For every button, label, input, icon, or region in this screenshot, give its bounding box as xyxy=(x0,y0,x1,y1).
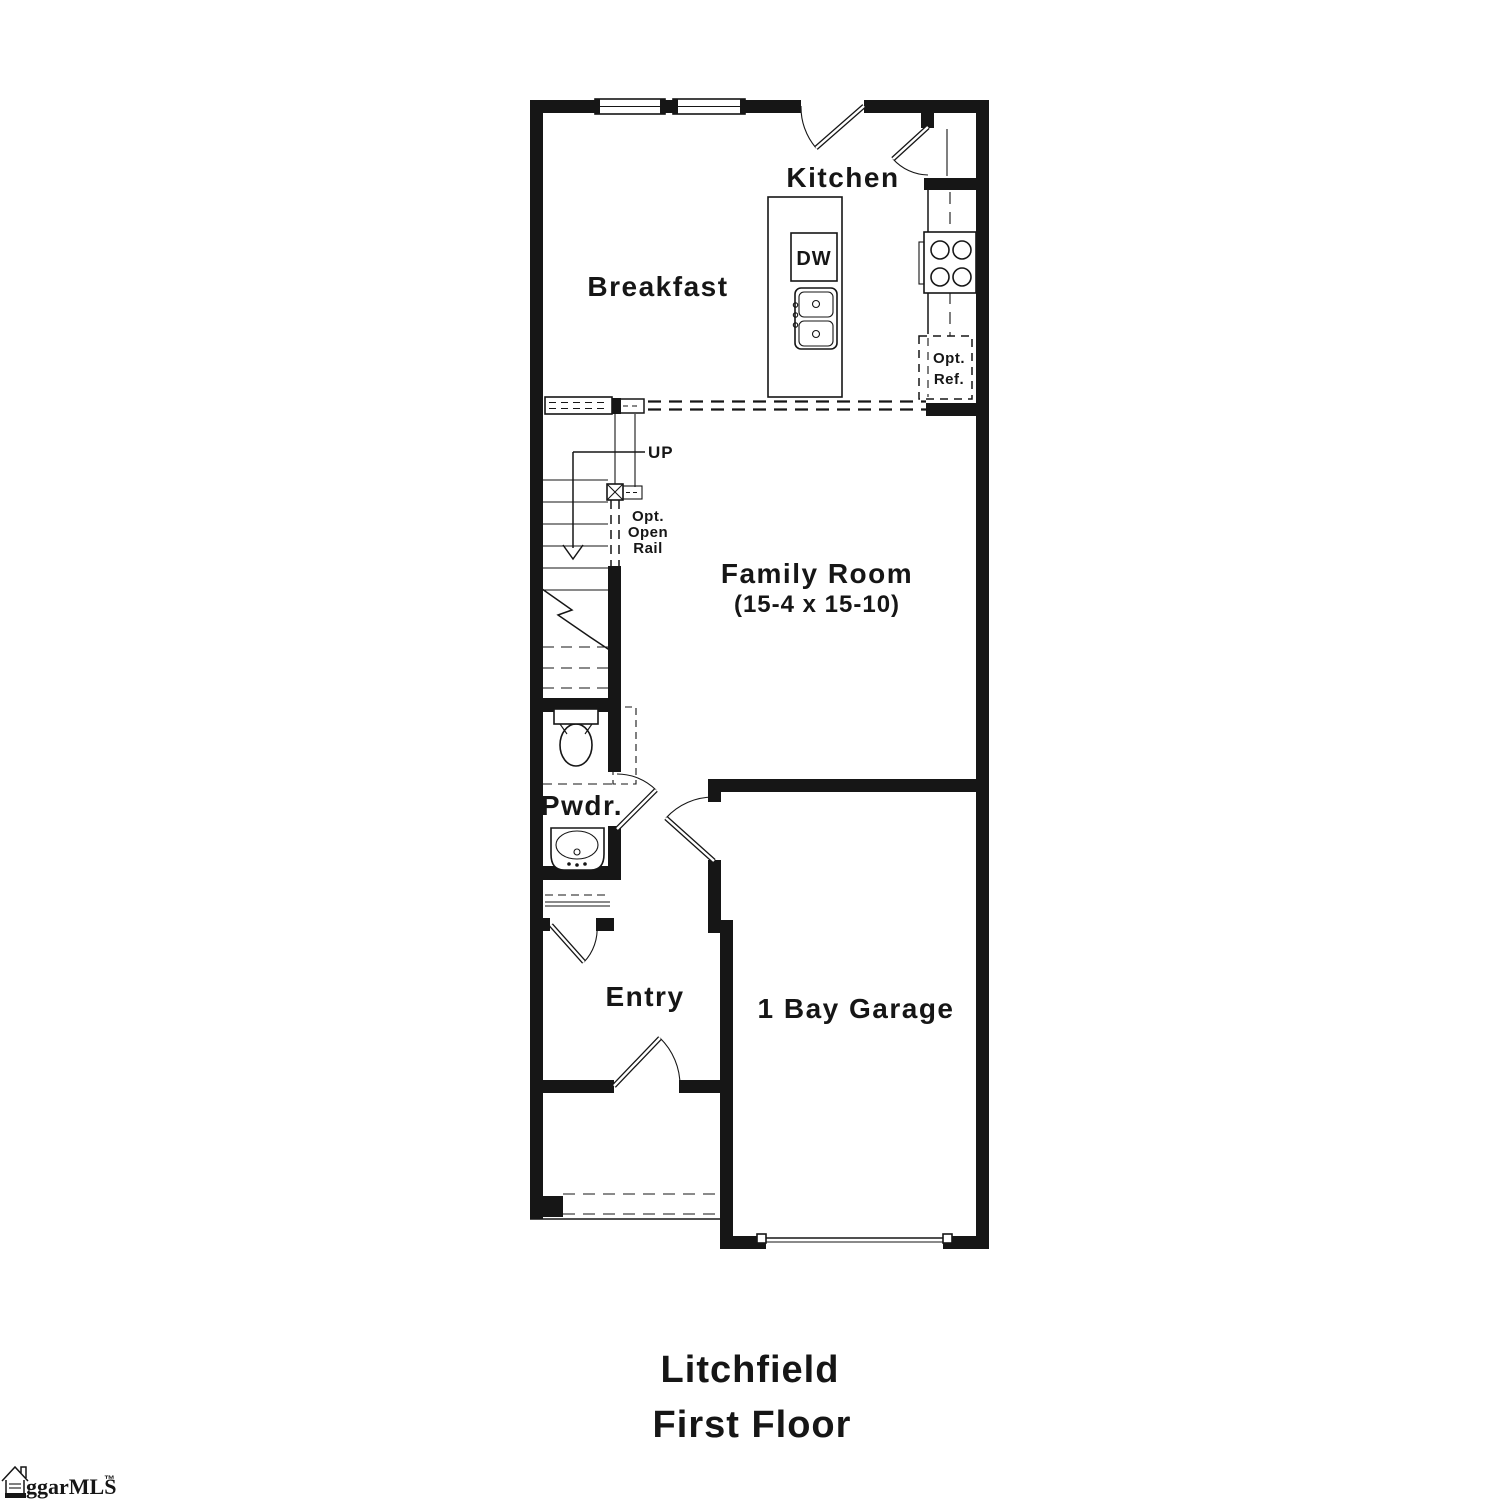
window-top-2 xyxy=(673,99,745,114)
entry-label: Entry xyxy=(605,981,684,1012)
burner xyxy=(931,241,949,259)
front-door xyxy=(614,1038,680,1086)
burner xyxy=(953,268,971,286)
garage-door-track xyxy=(943,1234,952,1243)
opt-ref-line1: Opt. xyxy=(933,350,965,367)
opt-ref-line2: Ref. xyxy=(934,371,964,388)
room-divider xyxy=(620,399,926,413)
door-swing-arc xyxy=(584,925,597,962)
closet-door xyxy=(551,925,597,962)
wall-powder-right-upper xyxy=(608,698,621,772)
optional-refrigerator xyxy=(919,336,972,399)
burner xyxy=(953,241,971,259)
wall-right xyxy=(976,100,989,1249)
window-optional-divider xyxy=(545,397,612,414)
floor-plan-page: Kitchen Breakfast Family Room (15-4 x 15… xyxy=(0,0,1500,1500)
window-cap xyxy=(740,99,745,114)
opt-open-rail-line3: Rail xyxy=(633,540,663,557)
house-base xyxy=(5,1493,26,1498)
kitchen-rear-door xyxy=(801,106,864,148)
door-swing-arc xyxy=(801,106,816,148)
wall-garage-top xyxy=(708,779,989,792)
door-swing-arc xyxy=(666,797,714,818)
porch-column xyxy=(540,1196,563,1217)
window-cap xyxy=(595,99,600,114)
windows xyxy=(545,99,745,414)
staircase xyxy=(535,414,645,688)
house-roof xyxy=(2,1467,28,1481)
burner xyxy=(931,268,949,286)
coat-closet xyxy=(545,895,610,906)
window-cap xyxy=(660,99,665,114)
wall-top-seg4 xyxy=(864,100,989,113)
family-room-dimensions: (15-4 x 15-10) xyxy=(734,591,900,618)
wall-top-seg1 xyxy=(530,100,595,113)
wall-pantry-bottom xyxy=(924,178,976,190)
wall-top-seg2 xyxy=(665,100,673,113)
garage-entry-door xyxy=(666,797,714,861)
plan-title: Litchfield First Floor xyxy=(653,1349,852,1446)
faucet-dot xyxy=(567,862,571,866)
powder-label: Pwdr. xyxy=(541,790,623,821)
powder-room-fixtures xyxy=(543,707,636,870)
wall-garage-left-lower xyxy=(720,925,733,1249)
floor-plan-drawing: Kitchen Breakfast Family Room (15-4 x 15… xyxy=(0,0,1500,1500)
opt-open-rail-line2: Open xyxy=(628,524,668,541)
opt-open-rail-line1: Opt. xyxy=(632,508,664,525)
door-leaf-core xyxy=(893,127,928,159)
kitchen-label: Kitchen xyxy=(786,162,899,193)
wall-closet-stub-left xyxy=(530,918,550,931)
wall-stair-right xyxy=(608,566,621,712)
window-top-1 xyxy=(595,99,665,114)
garage-door xyxy=(757,1234,952,1243)
door-leaf-core xyxy=(666,818,714,861)
range-stove xyxy=(919,232,976,293)
door-leaf-core xyxy=(551,925,584,962)
kitchen-sink xyxy=(793,288,837,349)
sink-outer xyxy=(795,288,837,349)
faucet-dot xyxy=(583,862,587,866)
pedestal-sink xyxy=(551,828,604,870)
rail-post xyxy=(623,486,642,499)
toilet xyxy=(554,709,598,766)
mls-watermark: ggarMLS ™ xyxy=(2,1467,116,1499)
garage-door-track xyxy=(757,1234,766,1243)
wall-garage-left-a xyxy=(708,779,721,802)
wall-top-seg3 xyxy=(745,100,801,113)
wall-divider-stub-right xyxy=(926,403,976,416)
plan-name-title: Litchfield xyxy=(661,1349,840,1391)
window-cap xyxy=(673,99,678,114)
mls-logo-tm: ™ xyxy=(104,1474,115,1486)
breakfast-label: Breakfast xyxy=(587,271,728,302)
wall-pantry-stub xyxy=(921,113,934,128)
wall-left xyxy=(530,100,543,1219)
stair-break-line xyxy=(535,584,611,651)
up-label: UP xyxy=(648,443,674,462)
family-room-label: Family Room xyxy=(721,558,913,589)
dishwasher-label: DW xyxy=(796,248,831,270)
house-icon xyxy=(2,1467,28,1498)
floor-name-title: First Floor xyxy=(653,1404,852,1446)
porch xyxy=(530,1194,720,1219)
mls-logo-text: ggarMLS xyxy=(26,1474,116,1499)
wall-entry-bottom-left xyxy=(530,1080,614,1093)
door-leaf-core xyxy=(816,106,864,148)
opt-ref-box xyxy=(919,336,972,399)
toilet-tank xyxy=(554,709,598,724)
door-leaf-core xyxy=(614,1038,660,1086)
door-swing-arc xyxy=(660,1038,680,1086)
faucet-dot xyxy=(575,863,579,867)
wall-closet-stub-right xyxy=(596,918,614,931)
garage-label: 1 Bay Garage xyxy=(758,993,955,1024)
window-frame xyxy=(545,397,612,414)
